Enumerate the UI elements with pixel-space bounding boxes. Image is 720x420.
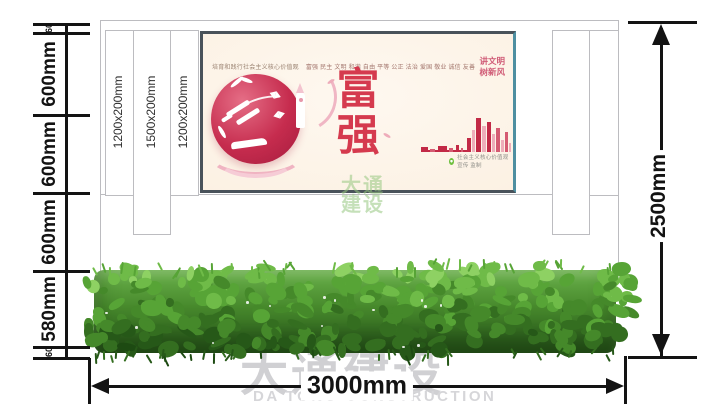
hedge-blade xyxy=(110,354,114,362)
pillar-size-label-3: 1200x200mm xyxy=(176,76,190,149)
dim-label-580: 580mm xyxy=(39,276,61,342)
skyline-bar xyxy=(421,147,428,152)
poster-panel: 培育和践行社会主义核心价值观富强 民主 文明 和谐 自由 平等 公正 法治 爱国… xyxy=(200,31,516,193)
hedge-tuft xyxy=(93,307,104,317)
hedge-blade xyxy=(482,259,485,269)
hedge-tuft xyxy=(81,275,92,289)
main-character-top: 富 xyxy=(335,68,381,113)
skyline-bar xyxy=(461,148,463,152)
hedge-flower-speck xyxy=(424,305,427,308)
city-skyline-illustration xyxy=(421,114,513,152)
hedge-blade xyxy=(213,353,215,364)
skyline-bar xyxy=(487,122,491,152)
dim-tick xyxy=(33,192,90,195)
pillar-right-2 xyxy=(552,30,590,235)
hedge-flower-speck xyxy=(135,326,138,329)
dim-label-60-bottom: 60 xyxy=(44,347,54,357)
arrow-up-icon xyxy=(652,24,670,45)
skyline-bar xyxy=(472,130,475,152)
dim-label-60-top: 60 xyxy=(44,23,54,33)
dim-label-600-3: 600mm xyxy=(39,199,61,265)
arrow-down-icon xyxy=(652,334,670,355)
hedge-blade xyxy=(396,267,398,278)
hedge-flower-speck xyxy=(372,309,375,312)
hedge-blade xyxy=(606,354,611,362)
dim-label-600-2: 600mm xyxy=(39,121,61,187)
hedge-flower-speck xyxy=(417,344,420,347)
hedge-planter xyxy=(90,264,620,357)
slogan-line-2: 树新风 xyxy=(479,67,505,78)
dim-label-600-1: 600mm xyxy=(39,41,61,107)
dim-label-2500: 2500mm xyxy=(645,150,673,242)
hedge-blade xyxy=(536,352,543,362)
credit-text: 社会主义核心价值观宣传 监制 xyxy=(457,153,513,169)
skyline-bar xyxy=(505,132,508,152)
skyline-bar xyxy=(492,134,495,152)
dim-tick xyxy=(628,356,697,359)
pillar-size-label-1: 1200x200mm xyxy=(111,76,125,149)
hedge-blade xyxy=(145,354,152,363)
pillar-right-1 xyxy=(589,30,619,196)
hedge-blade xyxy=(459,259,461,270)
dim-tick xyxy=(33,23,90,26)
pillar-size-label-2: 1500x200mm xyxy=(144,76,158,149)
poster-credit: 社会主义核心价值观宣传 监制 xyxy=(449,153,513,169)
skyline-bar xyxy=(476,118,481,152)
watermark-center-line2: 建设 xyxy=(341,196,385,215)
pink-crescent xyxy=(217,142,295,178)
bamboo-leaf xyxy=(239,76,254,85)
dim-tick xyxy=(33,346,90,349)
hedge-tuft xyxy=(332,323,340,334)
hedge-blade xyxy=(114,351,117,359)
pink-leaf-accent xyxy=(383,132,391,139)
dim-label-3000: 3000mm xyxy=(301,372,413,401)
arrow-right-icon xyxy=(606,378,624,394)
skyline-bar xyxy=(482,126,486,152)
slogan-line-1: 讲文明 xyxy=(479,56,505,67)
watermark-center: 大通 建设 xyxy=(341,177,385,215)
dim-tick xyxy=(33,270,90,273)
dim-tick xyxy=(33,114,90,117)
skyline-bar xyxy=(449,148,453,152)
hedge-blade xyxy=(411,262,413,272)
hedge-blade xyxy=(560,259,562,268)
signage-elevation-drawing: 大通建设 DA TONG CONSTRUCTION 1200x200mm 150… xyxy=(0,0,720,420)
hedge-blade xyxy=(608,263,611,271)
hedge-blade xyxy=(387,349,390,360)
dim-extension-right xyxy=(624,356,627,404)
hedge-blade xyxy=(414,267,416,279)
hedge-blade xyxy=(95,353,98,364)
hedge-tuft xyxy=(504,314,525,325)
hedge-flower-speck xyxy=(323,296,326,299)
hedge-tuft xyxy=(603,291,612,297)
skyline-bar xyxy=(438,146,447,152)
hedge-blade xyxy=(230,263,233,271)
poster-values-text: 富强 民主 文明 和谐 自由 平等 公正 法治 爱国 敬业 诚信 友善 xyxy=(306,65,475,71)
skyline-bar xyxy=(467,138,471,152)
hedge-flower-speck xyxy=(246,301,249,304)
skyline-bar xyxy=(430,149,435,152)
rocket-icon xyxy=(296,92,305,128)
dim-tick xyxy=(33,357,90,360)
hedge-blade xyxy=(202,350,206,360)
arrow-left-icon xyxy=(91,378,109,394)
skyline-bar xyxy=(496,128,500,152)
skyline-bar xyxy=(509,143,511,152)
hedge-tuft xyxy=(434,323,443,332)
hedge-flower-speck xyxy=(269,305,272,308)
hedge-blade xyxy=(210,263,212,274)
poster-slogan: 讲文明 树新风 xyxy=(479,56,505,77)
hedge-blade xyxy=(189,354,192,361)
dim-tick xyxy=(33,32,90,35)
skyline-bar xyxy=(456,145,459,152)
green-logo-icon xyxy=(449,158,454,165)
skyline-bar xyxy=(501,140,504,152)
main-character-bottom: 强 xyxy=(335,114,381,159)
